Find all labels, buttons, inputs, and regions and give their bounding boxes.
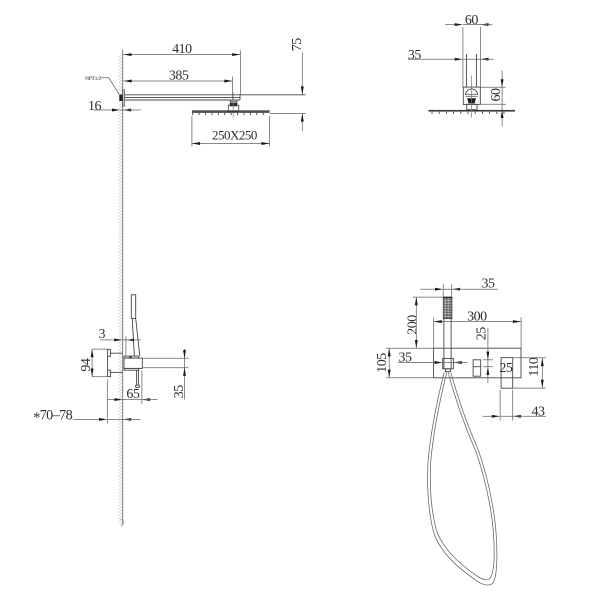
svg-text:25: 25 bbox=[475, 327, 490, 341]
svg-text:110: 110 bbox=[527, 357, 542, 376]
svg-text:75: 75 bbox=[290, 38, 305, 52]
svg-text:NPT1/2: NPT1/2 bbox=[85, 76, 101, 82]
svg-text:410: 410 bbox=[172, 42, 192, 57]
svg-text:35: 35 bbox=[399, 351, 413, 366]
svg-text:60: 60 bbox=[465, 13, 479, 28]
svg-text:16: 16 bbox=[88, 99, 102, 114]
svg-text:35: 35 bbox=[408, 48, 422, 63]
svg-text:60: 60 bbox=[489, 88, 504, 102]
svg-text:43: 43 bbox=[532, 404, 546, 419]
svg-text:250X250: 250X250 bbox=[212, 127, 257, 142]
svg-text:*70–78: *70–78 bbox=[33, 407, 72, 426]
svg-text:200: 200 bbox=[406, 315, 421, 335]
svg-text:300: 300 bbox=[467, 309, 487, 324]
svg-text:25: 25 bbox=[499, 361, 513, 376]
svg-text:385: 385 bbox=[169, 69, 189, 84]
